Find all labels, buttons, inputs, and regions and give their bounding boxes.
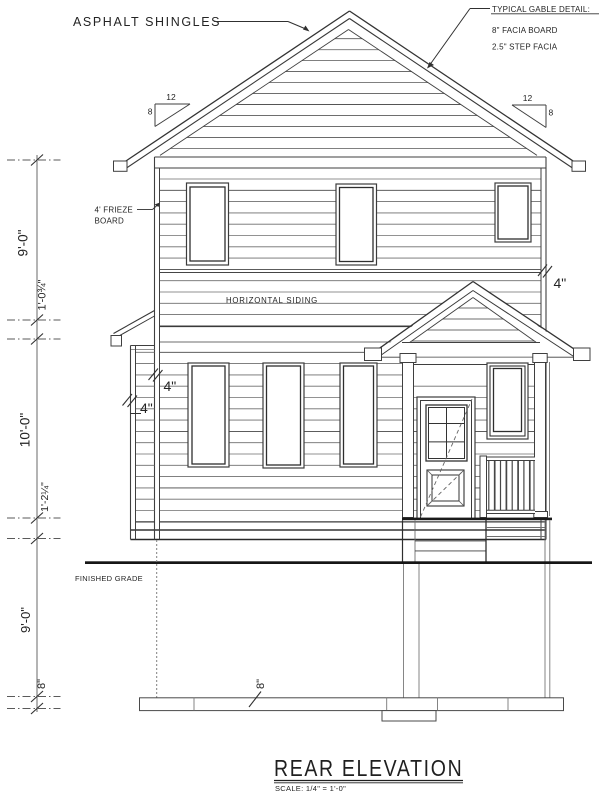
svg-text:10'-0": 10'-0" bbox=[18, 413, 33, 448]
svg-text:8: 8 bbox=[148, 107, 153, 117]
svg-text:ASPHALT SHINGLES: ASPHALT SHINGLES bbox=[73, 15, 221, 29]
svg-text:FINISHED GRADE: FINISHED GRADE bbox=[75, 574, 143, 583]
svg-text:8": 8" bbox=[255, 679, 267, 689]
svg-text:8" FACIA BOARD: 8" FACIA BOARD bbox=[492, 26, 558, 35]
svg-text:TYPICAL GABLE DETAIL:: TYPICAL GABLE DETAIL: bbox=[492, 5, 590, 14]
svg-text:HORIZONTAL SIDING: HORIZONTAL SIDING bbox=[226, 296, 318, 305]
svg-text:4' FRIEZE: 4' FRIEZE bbox=[95, 206, 133, 215]
svg-text:8": 8" bbox=[36, 679, 48, 689]
svg-text:8: 8 bbox=[549, 108, 554, 118]
svg-text:1'-0¾": 1'-0¾" bbox=[37, 279, 49, 310]
svg-text:2.5" STEP FACIA: 2.5" STEP FACIA bbox=[492, 43, 558, 52]
svg-text:12: 12 bbox=[166, 92, 176, 102]
svg-text:BOARD: BOARD bbox=[95, 217, 124, 226]
svg-text:9'-0": 9'-0" bbox=[18, 607, 33, 633]
svg-text:1'-2¼": 1'-2¼" bbox=[39, 482, 51, 512]
svg-text:SCALE: 1/4" = 1'-0": SCALE: 1/4" = 1'-0" bbox=[275, 784, 346, 793]
svg-text:4": 4" bbox=[164, 378, 177, 394]
svg-text:12: 12 bbox=[523, 93, 533, 103]
svg-text:4": 4" bbox=[554, 275, 567, 291]
svg-text:4": 4" bbox=[140, 400, 153, 416]
svg-text:REAR ELEVATION: REAR ELEVATION bbox=[274, 754, 463, 781]
svg-text:9'-0": 9'-0" bbox=[16, 229, 31, 256]
